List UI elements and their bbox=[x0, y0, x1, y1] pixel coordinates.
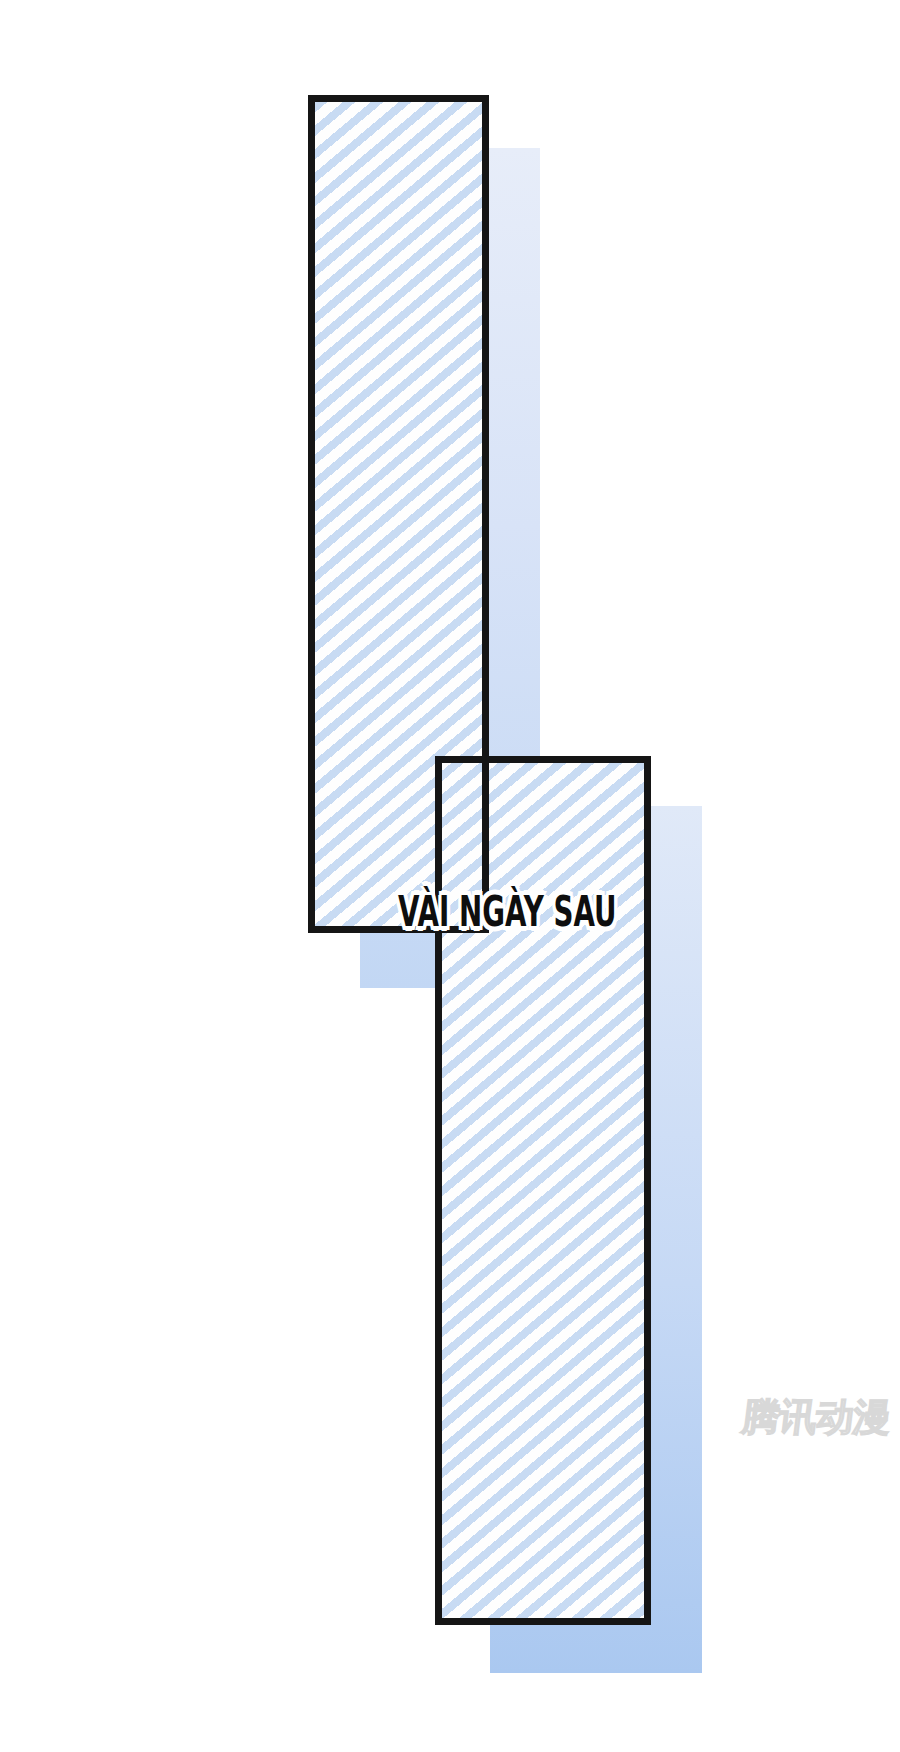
caption-a-few-days-later: VÀI NGÀY SAU bbox=[398, 889, 596, 935]
watermark-tencent-comics: 腾讯动漫 bbox=[739, 1392, 893, 1443]
comic-page: VÀI NGÀY SAU 腾讯动漫 bbox=[0, 0, 900, 1752]
panel-top-frame bbox=[308, 95, 489, 933]
